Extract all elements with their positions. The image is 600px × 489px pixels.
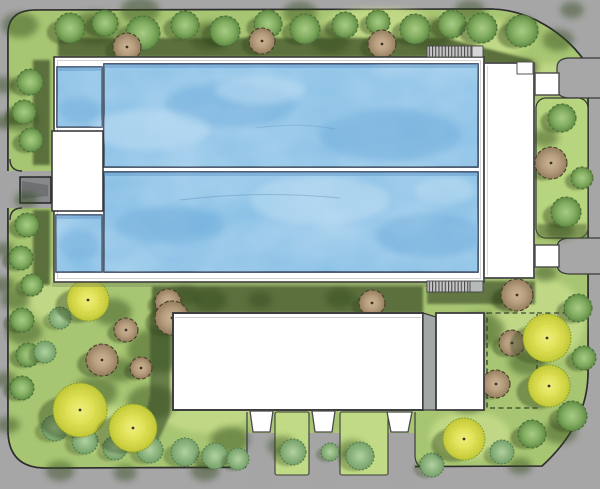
bottom-stairs — [427, 281, 470, 292]
pool-pavilion-block — [52, 131, 103, 211]
canopy-shadow-blob — [248, 292, 271, 308]
canopy-shadow-blob — [113, 465, 136, 481]
south-walkway-3 — [388, 433, 415, 483]
canopy-shadow-blob — [560, 2, 583, 18]
canopy-shadow-blob — [508, 458, 531, 474]
bottom-stairs-landing — [470, 281, 483, 292]
building-annex — [436, 313, 484, 410]
east-building-strip — [484, 63, 534, 278]
top-stairs — [427, 46, 472, 57]
top-stairs-landing — [472, 46, 483, 57]
entrance-tab-2 — [312, 411, 335, 432]
drive-pocket-top — [557, 58, 600, 98]
drive-pocket-bottom — [557, 238, 600, 274]
entrance-tab-3 — [387, 412, 412, 432]
canopy-shadow-blob — [542, 29, 573, 51]
east-entry-canopy-top — [535, 73, 559, 95]
east-entry-canopy-bottom — [535, 245, 559, 267]
main-building — [173, 313, 423, 410]
site-plan-svg — [0, 0, 600, 489]
canopy-shadow-blob — [46, 461, 75, 481]
entrance-tab-1 — [250, 411, 273, 432]
east-entry-platform — [517, 62, 533, 74]
site-plan-stage — [0, 0, 600, 489]
canopy-shadow-blob — [2, 12, 38, 37]
canopy-shadow-blob — [326, 288, 355, 308]
building-side-wall — [423, 313, 436, 410]
deck-shadow — [52, 283, 484, 287]
pool-complex — [40, 46, 559, 292]
canopy-shadow-blob — [14, 192, 37, 208]
